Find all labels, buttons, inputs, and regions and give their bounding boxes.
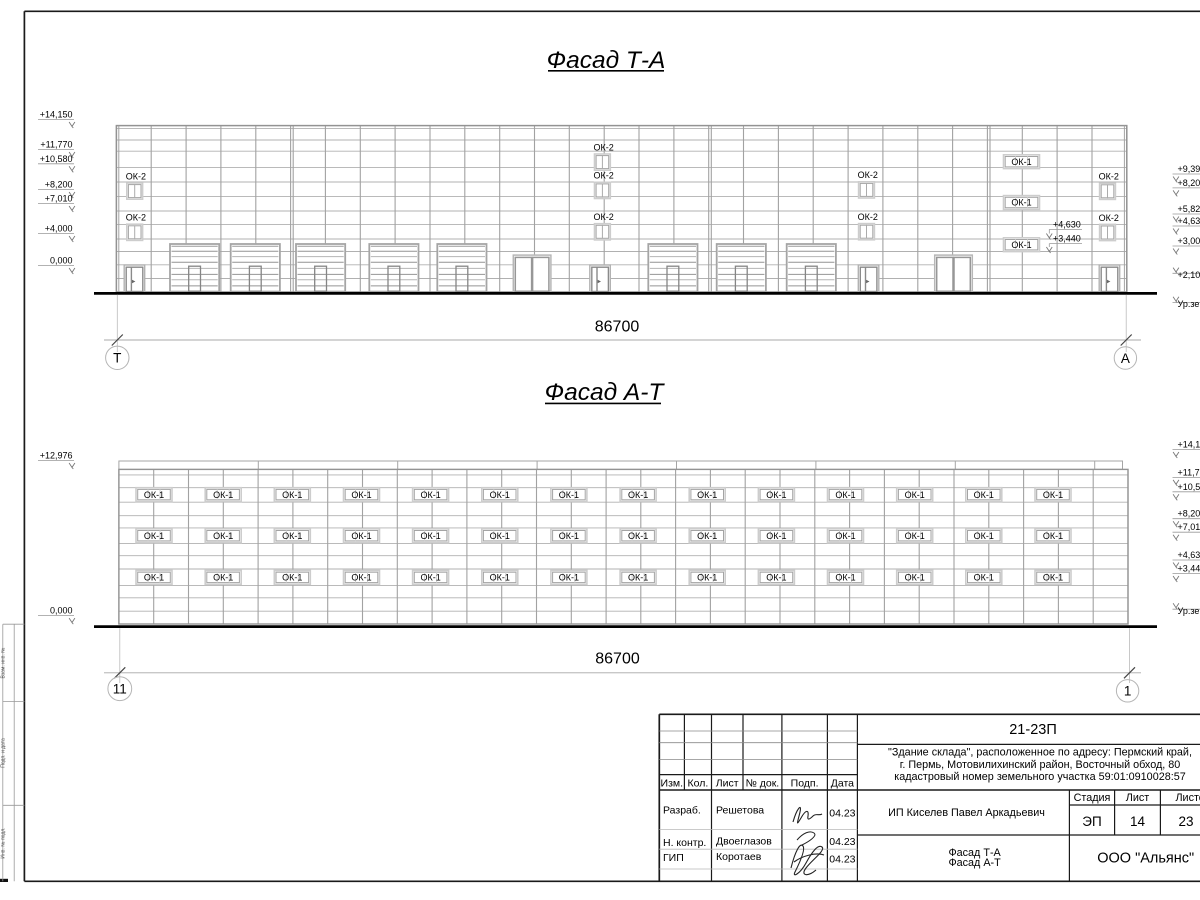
svg-text:Фасад А-Т: Фасад А-Т	[948, 857, 1001, 869]
svg-text:ОК-1: ОК-1	[144, 573, 164, 583]
svg-text:ОК-1: ОК-1	[697, 490, 717, 500]
svg-text:04.23: 04.23	[829, 808, 855, 820]
svg-text:ИП Киселев Павел Аркадьевич: ИП Киселев Павел Аркадьевич	[888, 807, 1045, 819]
svg-text:ОК-1: ОК-1	[213, 531, 233, 541]
svg-text:ОК-1: ОК-1	[628, 490, 648, 500]
svg-text:ОК-1: ОК-1	[835, 490, 855, 500]
svg-text:+3,440: +3,440	[1178, 564, 1200, 574]
svg-text:Т: Т	[113, 351, 121, 366]
svg-text:ОК-1: ОК-1	[213, 573, 233, 583]
svg-text:+8,200: +8,200	[1178, 509, 1200, 519]
svg-text:ГИП: ГИП	[663, 852, 684, 864]
svg-text:14: 14	[1130, 814, 1146, 829]
svg-text:+10,580: +10,580	[1178, 482, 1200, 492]
svg-text:ОК-1: ОК-1	[490, 573, 510, 583]
svg-text:ОК-2: ОК-2	[594, 142, 614, 152]
svg-text:ОК-2: ОК-2	[1099, 213, 1119, 223]
svg-text:ОК-2: ОК-2	[594, 212, 614, 222]
svg-text:ЭП: ЭП	[1082, 814, 1101, 829]
svg-text:+5,820: +5,820	[1178, 204, 1200, 214]
svg-text:ОК-1: ОК-1	[559, 573, 579, 583]
svg-text:ОК-1: ОК-1	[420, 490, 440, 500]
svg-text:ОК-2: ОК-2	[594, 171, 614, 181]
svg-text:11: 11	[113, 682, 127, 697]
svg-text:+7,010: +7,010	[1178, 522, 1200, 532]
svg-text:ОК-1: ОК-1	[490, 531, 510, 541]
svg-text:Кол.: Кол.	[688, 778, 709, 790]
svg-text:Лист: Лист	[1126, 792, 1150, 804]
svg-text:№ док.: № док.	[746, 778, 780, 790]
svg-text:кадастровый номер земельного у: кадастровый номер земельного участка 59:…	[894, 771, 1185, 783]
svg-text:ОК-1: ОК-1	[697, 531, 717, 541]
svg-text:Подп.: Подп.	[791, 778, 819, 790]
svg-text:ОК-1: ОК-1	[766, 531, 786, 541]
svg-text:+11,770: +11,770	[40, 140, 72, 150]
svg-text:ОК-1: ОК-1	[1011, 157, 1031, 167]
svg-text:Фасад Т-А: Фасад Т-А	[547, 47, 666, 74]
svg-text:ОК-2: ОК-2	[858, 170, 878, 180]
svg-text:ОК-1: ОК-1	[1011, 198, 1031, 208]
svg-text:ОК-1: ОК-1	[282, 531, 302, 541]
svg-text:+14,150: +14,150	[1178, 440, 1200, 450]
svg-text:21-23П: 21-23П	[1009, 722, 1057, 738]
svg-text:ОК-1: ОК-1	[1043, 573, 1063, 583]
svg-text:+9,390: +9,390	[1178, 164, 1200, 174]
svg-text:Ур.земли: Ур.земли	[1178, 606, 1200, 616]
svg-text:Фасад А-Т: Фасад А-Т	[545, 379, 666, 406]
svg-text:86700: 86700	[595, 319, 640, 336]
svg-text:ОК-1: ОК-1	[905, 531, 925, 541]
svg-text:ОК-1: ОК-1	[974, 573, 994, 583]
svg-text:ОК-2: ОК-2	[858, 212, 878, 222]
svg-text:+7,010: +7,010	[45, 194, 73, 204]
svg-text:ОК-1: ОК-1	[974, 531, 994, 541]
svg-text:Дата: Дата	[831, 778, 854, 790]
svg-text:+4,630: +4,630	[1178, 550, 1200, 560]
svg-text:0,000: 0,000	[50, 606, 73, 616]
svg-text:Ур.земли: Ур.земли	[1178, 299, 1200, 309]
svg-text:"Здание склада", расположенное: "Здание склада", расположенное по адресу…	[888, 747, 1192, 759]
svg-text:Н. контр.: Н. контр.	[663, 837, 706, 849]
svg-text:Коротаев: Коротаев	[716, 851, 762, 863]
svg-text:ОК-1: ОК-1	[559, 490, 579, 500]
svg-text:+2,100: +2,100	[1178, 270, 1200, 280]
svg-text:23: 23	[1178, 814, 1193, 829]
svg-text:ОК-1: ОК-1	[282, 490, 302, 500]
svg-text:ОК-2: ОК-2	[1099, 172, 1119, 182]
svg-text:+4,630: +4,630	[1053, 220, 1081, 230]
svg-text:+4,630: +4,630	[1178, 216, 1200, 226]
svg-text:+12,976: +12,976	[40, 451, 73, 461]
svg-text:ОК-1: ОК-1	[213, 490, 233, 500]
svg-text:+10,580: +10,580	[40, 154, 73, 164]
svg-text:+3,440: +3,440	[1053, 233, 1081, 243]
svg-text:ОК-1: ОК-1	[351, 573, 371, 583]
svg-text:ОК-1: ОК-1	[490, 490, 510, 500]
svg-text:Взам. инв. №: Взам. инв. №	[1, 648, 7, 679]
svg-text:ОК-2: ОК-2	[126, 171, 146, 181]
svg-text:Инв. № подл.: Инв. № подл.	[1, 827, 7, 858]
svg-text:ОК-1: ОК-1	[628, 573, 648, 583]
svg-text:А: А	[1121, 351, 1130, 366]
svg-text:ОК-1: ОК-1	[282, 573, 302, 583]
svg-text:86700: 86700	[595, 651, 640, 668]
svg-text:ОК-1: ОК-1	[974, 490, 994, 500]
svg-text:ОК-1: ОК-1	[420, 531, 440, 541]
svg-text:ОК-2: ОК-2	[126, 213, 146, 223]
svg-text:ОК-1: ОК-1	[144, 490, 164, 500]
svg-text:+11,770: +11,770	[1178, 467, 1200, 477]
svg-text:+3,000: +3,000	[1178, 236, 1200, 246]
svg-text:ОК-1: ОК-1	[835, 573, 855, 583]
svg-text:ОК-1: ОК-1	[144, 531, 164, 541]
svg-text:ОК-1: ОК-1	[351, 531, 371, 541]
svg-text:ОК-1: ОК-1	[835, 531, 855, 541]
svg-text:Решетова: Решетова	[716, 805, 764, 817]
svg-text:0,000: 0,000	[50, 256, 73, 266]
svg-text:Подп. и дата: Подп. и дата	[1, 738, 7, 768]
svg-text:Листов: Листов	[1175, 792, 1200, 804]
svg-text:ОК-1: ОК-1	[351, 490, 371, 500]
svg-text:04.23: 04.23	[829, 836, 855, 848]
svg-text:г. Пермь, Мотовилихинский райо: г. Пермь, Мотовилихинский район, Восточн…	[900, 759, 1181, 771]
svg-text:ОК-1: ОК-1	[420, 573, 440, 583]
svg-text:1: 1	[1124, 684, 1132, 699]
svg-text:04.23: 04.23	[829, 853, 855, 865]
svg-text:ОК-1: ОК-1	[905, 490, 925, 500]
svg-text:ОК-1: ОК-1	[1043, 531, 1063, 541]
svg-text:+8,200: +8,200	[1178, 178, 1200, 188]
svg-text:ОК-1: ОК-1	[1011, 240, 1031, 250]
svg-text:ОК-1: ОК-1	[1043, 490, 1063, 500]
svg-text:ОК-1: ОК-1	[697, 573, 717, 583]
svg-text:Разраб.: Разраб.	[663, 805, 701, 817]
svg-text:+14,150: +14,150	[40, 110, 73, 120]
svg-text:Двоеглазов: Двоеглазов	[716, 835, 772, 847]
svg-text:ОК-1: ОК-1	[628, 531, 648, 541]
svg-text:+8,200: +8,200	[45, 180, 73, 190]
svg-text:ОК-1: ОК-1	[766, 573, 786, 583]
svg-text:Стадия: Стадия	[1074, 792, 1111, 804]
svg-text:Лист: Лист	[716, 778, 739, 790]
svg-text:ОК-1: ОК-1	[559, 531, 579, 541]
svg-text:ОК-1: ОК-1	[905, 573, 925, 583]
svg-text:ОК-1: ОК-1	[766, 490, 786, 500]
svg-text:Изм.: Изм.	[661, 778, 684, 790]
svg-text:+4,000: +4,000	[45, 224, 73, 234]
svg-text:ООО "Альянс": ООО "Альянс"	[1097, 850, 1194, 866]
